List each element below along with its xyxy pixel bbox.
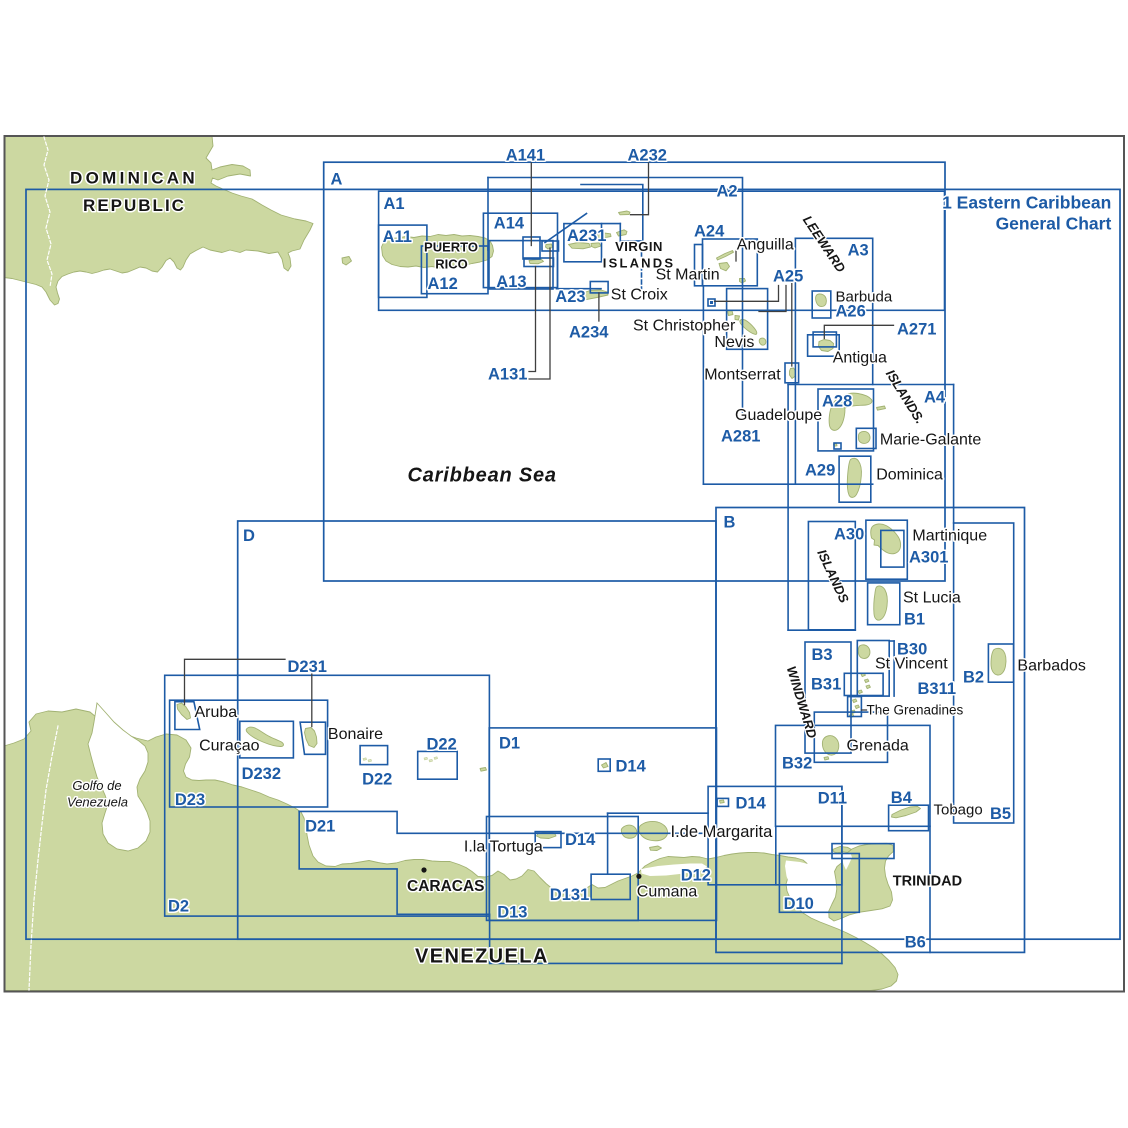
svg-text:Caribbean Sea: Caribbean Sea <box>408 465 557 487</box>
svg-text:A: A <box>331 171 343 189</box>
svg-text:D232: D232 <box>242 765 281 783</box>
svg-text:A234: A234 <box>569 324 609 342</box>
svg-text:Golfo de: Golfo de <box>72 778 121 793</box>
svg-text:B30: B30 <box>897 641 927 659</box>
svg-text:Anguilla: Anguilla <box>737 237 794 254</box>
svg-text:D2: D2 <box>168 898 189 916</box>
svg-text:A271: A271 <box>897 321 936 339</box>
svg-text:A23: A23 <box>555 288 585 306</box>
svg-text:D231: D231 <box>288 658 327 676</box>
svg-text:A30: A30 <box>834 526 864 544</box>
svg-text:B1: B1 <box>904 611 925 629</box>
svg-text:B311: B311 <box>918 680 957 698</box>
svg-text:St Martin: St Martin <box>656 267 720 284</box>
svg-text:The Grenadines: The Grenadines <box>867 703 964 718</box>
svg-text:A24: A24 <box>694 223 725 241</box>
svg-text:A301: A301 <box>909 549 948 567</box>
svg-text:A12: A12 <box>428 275 458 293</box>
svg-text:D21: D21 <box>305 818 335 836</box>
svg-text:Venezuela: Venezuela <box>67 795 128 810</box>
svg-text:D1: D1 <box>499 735 520 753</box>
svg-text:A29: A29 <box>805 462 835 480</box>
svg-text:B4: B4 <box>891 789 913 807</box>
svg-text:RICO: RICO <box>435 257 468 272</box>
svg-text:A2: A2 <box>717 183 738 201</box>
svg-text:St Croix: St Croix <box>611 287 668 304</box>
svg-text:A231: A231 <box>567 227 606 245</box>
svg-text:D14: D14 <box>616 758 647 776</box>
svg-text:D22: D22 <box>427 736 457 754</box>
svg-text:A4: A4 <box>924 389 946 407</box>
svg-text:D13: D13 <box>497 904 527 922</box>
svg-text:A25: A25 <box>773 268 803 286</box>
svg-text:I.la Tortuga: I.la Tortuga <box>464 839 543 856</box>
svg-text:D23: D23 <box>175 791 205 809</box>
svg-text:B5: B5 <box>990 805 1011 823</box>
svg-text:D22: D22 <box>362 771 392 789</box>
svg-text:PUERTO: PUERTO <box>424 240 478 255</box>
svg-text:A3: A3 <box>848 242 869 260</box>
svg-text:Cumana: Cumana <box>637 884 698 901</box>
svg-text:St Lucia: St Lucia <box>903 590 961 607</box>
svg-text:A131: A131 <box>488 366 527 384</box>
svg-text:St Christopher: St Christopher <box>633 318 736 335</box>
svg-text:Barbados: Barbados <box>1017 658 1086 675</box>
svg-text:A232: A232 <box>628 147 667 165</box>
svg-text:DOMINICAN: DOMINICAN <box>70 169 198 188</box>
svg-text:A28: A28 <box>822 393 852 411</box>
svg-text:TRINIDAD: TRINIDAD <box>893 874 962 890</box>
svg-text:B: B <box>724 514 736 532</box>
svg-text:Dominica: Dominica <box>876 467 943 484</box>
svg-text:D131: D131 <box>550 886 589 904</box>
svg-text:D: D <box>243 527 255 545</box>
svg-text:D14: D14 <box>736 795 767 813</box>
svg-text:I.de Margarita: I.de Margarita <box>671 823 774 841</box>
svg-text:Guadeloupe: Guadeloupe <box>735 407 822 424</box>
svg-text:Aruba: Aruba <box>195 704 238 721</box>
svg-text:D12: D12 <box>681 867 711 885</box>
svg-text:General Chart: General Chart <box>996 214 1112 234</box>
svg-text:A26: A26 <box>836 303 866 321</box>
svg-text:Montserrat: Montserrat <box>704 367 781 384</box>
svg-text:A11: A11 <box>383 228 412 246</box>
svg-text:B3: B3 <box>812 646 833 664</box>
svg-text:VENEZUELA: VENEZUELA <box>415 946 549 968</box>
svg-text:CARACAS: CARACAS <box>407 878 485 895</box>
svg-text:Grenada: Grenada <box>847 738 909 755</box>
svg-text:A281: A281 <box>721 428 760 446</box>
svg-text:Nevis: Nevis <box>714 334 754 351</box>
svg-text:B31: B31 <box>811 676 841 694</box>
svg-text:A1: A1 <box>384 195 405 213</box>
svg-text:REPUBLIC: REPUBLIC <box>83 196 186 215</box>
svg-text:A14: A14 <box>494 215 525 233</box>
svg-text:Tobago: Tobago <box>934 802 983 819</box>
svg-text:B2: B2 <box>963 669 984 687</box>
svg-text:Antigua: Antigua <box>833 350 887 367</box>
svg-text:VIRGIN: VIRGIN <box>615 239 663 254</box>
svg-text:1 Eastern Caribbean: 1 Eastern Caribbean <box>942 193 1111 213</box>
svg-text:B32: B32 <box>782 755 812 773</box>
svg-text:Marie-Galante: Marie-Galante <box>880 432 981 449</box>
svg-text:A141: A141 <box>506 147 545 165</box>
svg-text:B6: B6 <box>905 934 926 952</box>
svg-text:D14: D14 <box>565 831 596 849</box>
svg-text:Bonaire: Bonaire <box>328 726 383 743</box>
svg-text:Curaçao: Curaçao <box>199 738 260 755</box>
svg-text:D11: D11 <box>818 790 847 808</box>
svg-text:Martinique: Martinique <box>912 528 987 545</box>
svg-text:A13: A13 <box>496 273 526 291</box>
svg-text:D10: D10 <box>784 895 814 913</box>
